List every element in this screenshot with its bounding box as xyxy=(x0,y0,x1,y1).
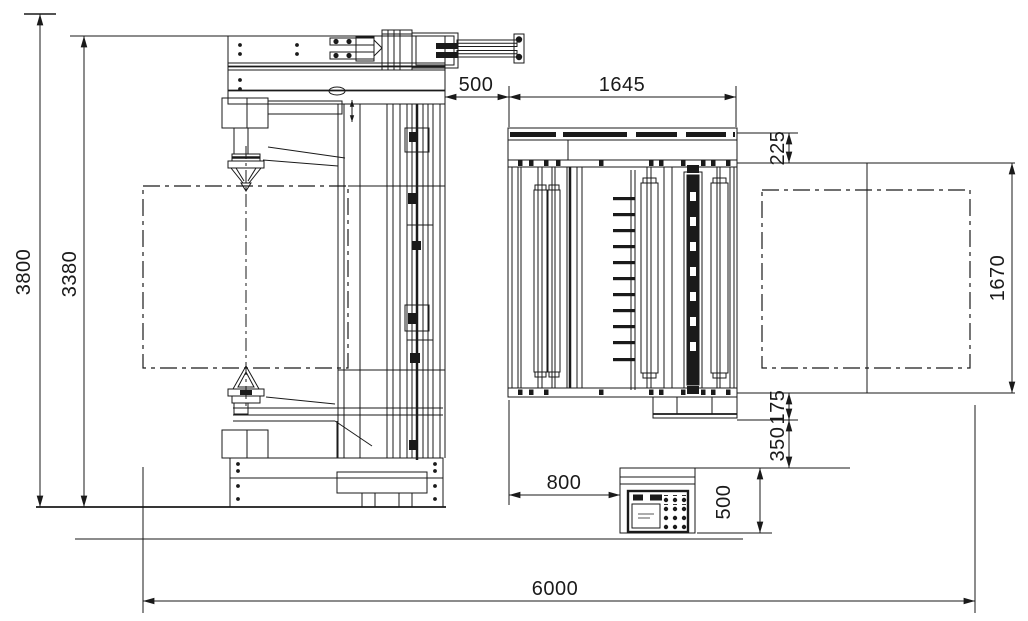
machine-drawing: 3800 3380 500 1645 225 1670 xyxy=(0,0,1028,621)
panel-switch-left xyxy=(633,495,643,501)
dimension-machine-width: 1645 xyxy=(509,74,736,127)
roll-plan-phantom xyxy=(762,190,970,368)
dimension-beam-depth: 225 xyxy=(767,131,789,166)
front-view xyxy=(143,30,524,507)
bottom-cone-center xyxy=(228,366,335,414)
dim-beam-depth-label: 225 xyxy=(767,131,789,166)
dimension-roll-length: 1670 xyxy=(987,163,1012,393)
panel-switch-right xyxy=(650,495,662,501)
dim-overall-length-label: 6000 xyxy=(532,578,579,600)
outfeed-box xyxy=(653,397,737,418)
panel-buttons xyxy=(664,496,686,530)
dimension-panel-offset: 800 xyxy=(509,400,620,505)
control-panel xyxy=(620,468,695,533)
plan-view xyxy=(508,128,1015,418)
dim-panel-offset-label: 800 xyxy=(547,472,582,494)
ground-lines xyxy=(36,507,743,539)
dim-top-clearance-label: 500 xyxy=(459,74,494,96)
dimension-panel-width: 500 xyxy=(697,468,772,533)
dimension-outfeed-clearance: 350 xyxy=(695,420,850,468)
dim-roll-length-label: 1670 xyxy=(987,255,1009,302)
rollers-left xyxy=(534,167,582,388)
dimension-top-clearance: 500 xyxy=(445,74,509,97)
panel-screen xyxy=(632,504,660,528)
dimension-outfeed-drop: 175 xyxy=(737,390,798,425)
drawing-canvas: 3800 3380 500 1645 225 1670 xyxy=(0,0,1028,621)
mast-columns xyxy=(338,104,445,460)
dimension-mast-height: 3380 xyxy=(59,36,330,507)
dim-overall-height-label: 3800 xyxy=(13,249,35,296)
dimension-overall-height: 3800 xyxy=(13,14,56,507)
machine-base xyxy=(230,458,443,507)
dim-panel-width-label: 500 xyxy=(713,485,735,520)
separator-comb xyxy=(613,170,635,390)
dim-outfeed-clearance-label: 350 xyxy=(767,427,789,462)
dim-outfeed-drop-label: 175 xyxy=(767,390,789,425)
dim-machine-width-label: 1645 xyxy=(599,74,646,96)
rollers-right xyxy=(641,165,734,394)
dim-mast-height-label: 3380 xyxy=(59,251,81,298)
